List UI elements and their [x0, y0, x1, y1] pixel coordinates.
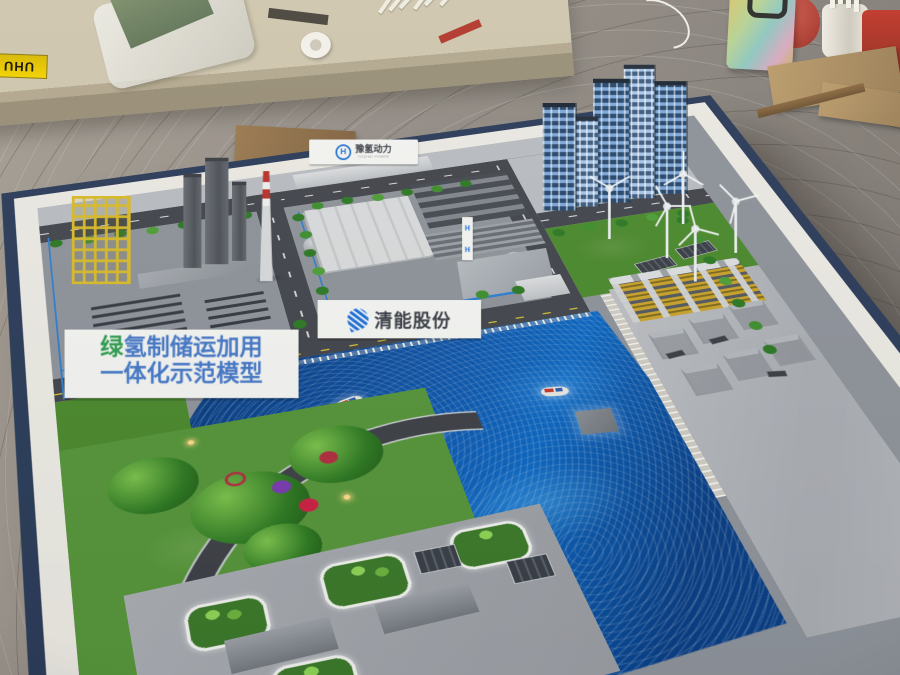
gate-sign-subtext: YUQING POWER — [358, 154, 389, 158]
process-tower — [232, 182, 246, 261]
plant-building-b — [195, 279, 279, 335]
tree-row-north — [50, 239, 63, 248]
banner-sign: 绿氢制储运加用 一体化示范模型 — [64, 329, 298, 398]
workshop-photo: UHU — [0, 0, 900, 675]
company-logo — [345, 306, 372, 333]
pylon-letter-top: H — [465, 224, 470, 232]
wind-turbine — [584, 179, 634, 239]
banner-line2: 一体化示范模型 — [100, 360, 263, 386]
office-tower — [543, 103, 576, 211]
process-tower — [205, 158, 229, 265]
process-tower — [183, 174, 201, 268]
tree-row-road-west — [291, 213, 305, 222]
gate-sign: H 豫氢动力 YUQING POWER — [309, 139, 418, 164]
banner-line1: 氢制储运加用 — [123, 333, 262, 359]
company-sign: 清能股份 — [318, 300, 482, 338]
white-factory-hall — [304, 196, 433, 272]
yellow-lattice-tower — [72, 196, 131, 284]
model-table: H 豫氢动力 YUQING POWER H H — [0, 0, 900, 675]
banner-char-green: 绿 — [100, 333, 123, 359]
table-frame: H 豫氢动力 YUQING POWER H H — [14, 102, 900, 675]
company-sign-text: 清能股份 — [374, 306, 451, 332]
pylon-letter-bottom: H — [465, 245, 470, 253]
station-pylon-sign: H H — [462, 217, 473, 260]
model-ground: H 豫氢动力 YUQING POWER H H — [38, 116, 900, 675]
blue-pipe-line — [48, 238, 66, 400]
gate-sign-text: 豫氢动力 — [355, 145, 391, 154]
gate-logo: H — [335, 144, 351, 160]
wind-turbine — [669, 219, 720, 281]
